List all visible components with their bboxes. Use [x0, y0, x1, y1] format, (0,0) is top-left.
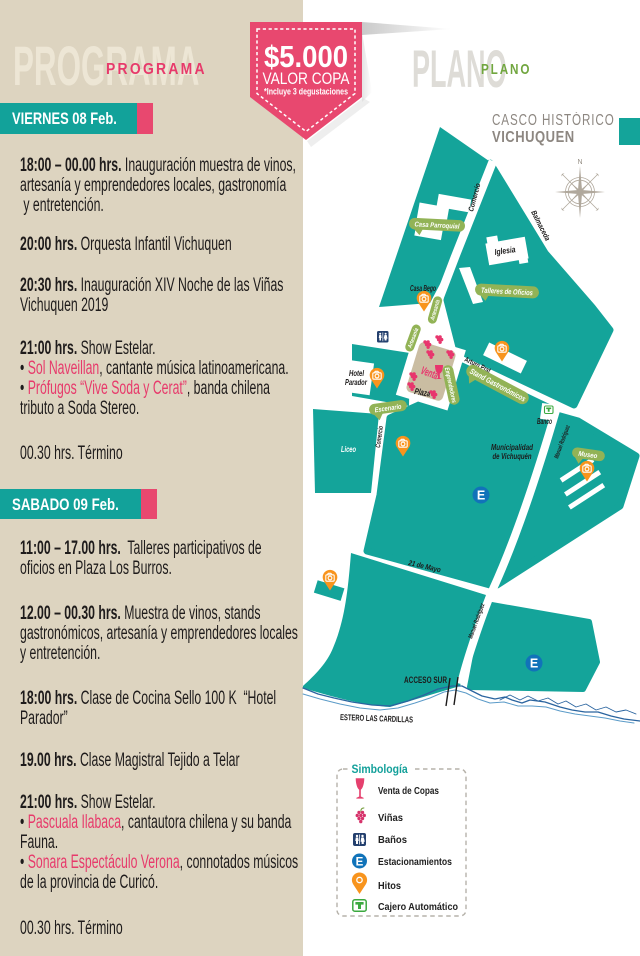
svg-text:Liceo: Liceo — [341, 444, 356, 454]
svg-text:de Vichuquén: de Vichuquén — [493, 452, 532, 461]
svg-text:E: E — [530, 657, 538, 671]
svg-text:Cajero Automático: Cajero Automático — [378, 901, 458, 913]
svg-text:E: E — [356, 857, 364, 869]
svg-text:Banco: Banco — [537, 417, 552, 426]
svg-text:E: E — [477, 489, 485, 503]
svg-text:N: N — [577, 159, 582, 166]
svg-text:Parador: Parador — [345, 377, 367, 387]
svg-text:Baños: Baños — [378, 834, 407, 846]
svg-text:Estacionamientos: Estacionamientos — [378, 856, 452, 868]
svg-text:Hitos: Hitos — [378, 880, 401, 892]
svg-text:Municipalidad: Municipalidad — [491, 443, 534, 452]
svg-text:Venta de Copas: Venta de Copas — [378, 785, 439, 797]
svg-text:ESTERO LAS CARDILLAS: ESTERO LAS CARDILLAS — [340, 712, 414, 725]
svg-text:Viñas: Viñas — [378, 812, 403, 824]
svg-text:ACCESO SUR: ACCESO SUR — [404, 675, 447, 685]
